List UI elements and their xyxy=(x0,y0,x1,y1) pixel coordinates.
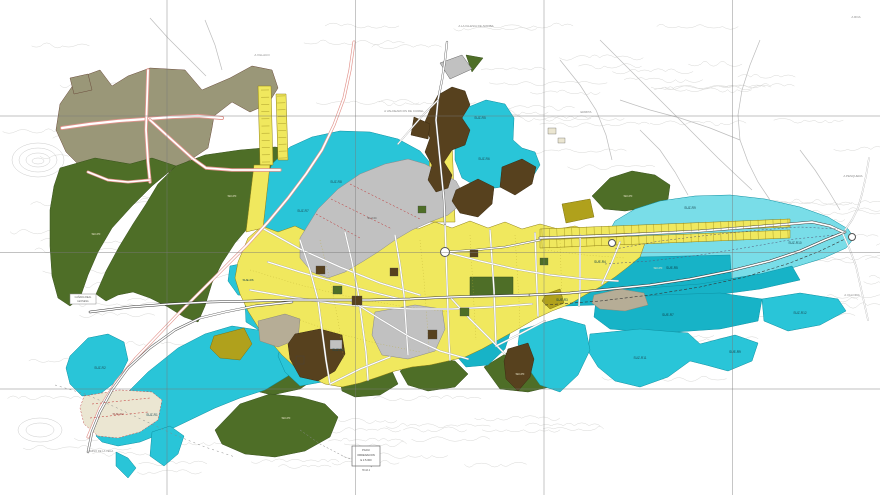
contour-ellipse xyxy=(19,148,57,172)
contour-line xyxy=(338,418,397,423)
map-label: A VALDEARCOS DE CURIEL xyxy=(384,109,424,113)
contour-line xyxy=(876,242,880,246)
contour-line xyxy=(864,279,880,284)
roundabout xyxy=(609,240,616,247)
title-block-line: ORDENACION xyxy=(357,453,375,457)
contour-line xyxy=(475,416,560,421)
zoning-map-canvas: SUZ-R8SUZ-R7SUZ-R5SUZ-R6SUZ-R9SUZ-R10SUE… xyxy=(0,0,880,495)
map-label: SUZ-R9 xyxy=(684,206,696,210)
map-label: A VALORIA xyxy=(844,293,859,297)
map-label: SR-PF xyxy=(654,266,663,270)
rural-road xyxy=(205,20,222,70)
map-label: SR-PF xyxy=(282,416,291,420)
map-label: SUZ-R7 xyxy=(297,209,309,213)
contour-line xyxy=(325,23,399,28)
contour-line xyxy=(559,55,643,60)
contour-line xyxy=(251,459,339,463)
map-label: SR-PF xyxy=(516,372,525,376)
contour-line xyxy=(328,438,403,441)
map-label: SUZ-R1 xyxy=(146,413,158,417)
roundabout xyxy=(849,234,856,241)
contour-line xyxy=(849,208,880,213)
map-label: A PESQUERA xyxy=(843,174,862,178)
rural-road xyxy=(600,40,752,190)
patch-brown xyxy=(316,266,325,274)
contour-ellipse xyxy=(26,423,54,437)
contour-line xyxy=(579,64,642,69)
map-label: SUZ-R10 xyxy=(788,241,802,245)
contour-line xyxy=(412,437,490,442)
map-label: SUE-R5 xyxy=(666,266,678,270)
map-label: SUZ-R6 xyxy=(478,157,490,161)
contour-line xyxy=(373,396,481,401)
patch-brown xyxy=(428,330,437,339)
contour-line xyxy=(489,82,607,86)
zoning-map-viewport: SUZ-R8SUZ-R7SUZ-R5SUZ-R6SUZ-R9SUZ-R10SUE… xyxy=(0,0,880,495)
contour-line xyxy=(544,116,625,121)
contour-line xyxy=(612,69,693,74)
patch-cream xyxy=(548,128,556,134)
contour-line xyxy=(23,445,131,450)
map-label: CAMINO DE LA VEGA xyxy=(87,449,114,453)
rural-road xyxy=(800,150,840,210)
map-label: SUE-R7 xyxy=(662,313,674,317)
title-block-line: PGOU xyxy=(362,448,370,452)
contour-line xyxy=(139,461,207,465)
map-label: SUZ-R11 xyxy=(633,356,646,360)
map-label: SUZ-R4 xyxy=(332,348,344,352)
map-label: SUE-R4 xyxy=(594,260,606,264)
zone-green-park-block xyxy=(470,277,513,296)
patch-green xyxy=(333,286,342,294)
title-block-footnote: HOJA 2 xyxy=(362,469,371,472)
contour-line xyxy=(543,426,604,430)
contour-line xyxy=(386,424,491,429)
contour-line xyxy=(403,427,466,432)
map-label: SUZ-R8 xyxy=(330,180,342,184)
roundabout xyxy=(441,248,450,257)
rural-road xyxy=(150,18,206,76)
contour-line xyxy=(32,43,90,48)
zone-cyan-sw-tail xyxy=(116,452,136,478)
road-ne-exit xyxy=(845,158,869,230)
contour-line xyxy=(540,122,650,127)
map-label: A ROA xyxy=(851,15,860,19)
contour-ellipse xyxy=(32,158,44,164)
map-label: SUE-R9 xyxy=(729,350,741,354)
contour-line xyxy=(372,45,442,49)
contour-line xyxy=(624,78,703,83)
patch-cream xyxy=(558,138,565,143)
map-label: A VILLACO xyxy=(254,53,270,57)
zone-oliveyellow-sg-e xyxy=(562,199,594,223)
annotation-box-line: LEONESA xyxy=(77,300,89,303)
map-label: SR-PF xyxy=(624,194,633,198)
contour-line xyxy=(657,24,739,29)
map-label: SUE-R2 xyxy=(112,412,123,416)
contour-line xyxy=(137,470,201,475)
patch-brown xyxy=(390,268,398,276)
rural-road xyxy=(738,40,770,200)
contour-line xyxy=(834,146,880,151)
zone-yellow-nw-strip-a xyxy=(258,86,273,165)
patch-brown xyxy=(296,356,304,364)
contour-line xyxy=(481,67,546,70)
title-block-line: E 1:5.000 xyxy=(360,458,372,462)
contour-line xyxy=(865,257,880,261)
map-label: SR-PF xyxy=(92,232,101,236)
zone-yellow-nw-strip-b xyxy=(276,94,288,160)
patch-brown xyxy=(470,250,478,257)
patch-brown xyxy=(352,296,362,305)
contour-line xyxy=(650,121,746,126)
contour-line xyxy=(8,396,82,400)
contour-line xyxy=(316,101,419,106)
contour-line xyxy=(482,430,560,433)
map-label: SUZ-R12 xyxy=(793,311,807,315)
contour-line xyxy=(688,61,742,66)
contour-line xyxy=(568,165,655,170)
contour-line xyxy=(530,90,600,95)
contour-line xyxy=(719,84,795,88)
contour-line xyxy=(278,465,331,469)
annotation-box-line: CAÑADA REAL xyxy=(75,296,92,299)
map-label: SUZ-R2 xyxy=(94,366,106,370)
contour-line xyxy=(464,462,526,467)
patch-green xyxy=(418,206,426,213)
map-label: SR-PF xyxy=(228,194,237,198)
contour-line xyxy=(491,23,574,28)
contour-ellipse xyxy=(26,153,50,167)
map-label: SUE-R6 xyxy=(242,278,253,282)
map-label: ERMITA xyxy=(580,110,591,114)
zone-cyan-sw-1 xyxy=(66,334,128,396)
contour-line xyxy=(774,119,844,124)
contour-line xyxy=(869,274,880,279)
map-label: A LA IGLESIA DE ARRIBA xyxy=(458,24,493,28)
contour-line xyxy=(525,423,600,426)
map-label: SU-NC xyxy=(367,216,377,220)
contour-ellipse xyxy=(18,418,62,442)
map-label: SUE-R3 xyxy=(556,298,568,302)
zone-green-south-lobe xyxy=(215,394,338,457)
patch-green xyxy=(460,308,469,316)
map-label: SUZ-R5 xyxy=(474,116,486,120)
road-ne-exit-casing xyxy=(845,158,869,230)
